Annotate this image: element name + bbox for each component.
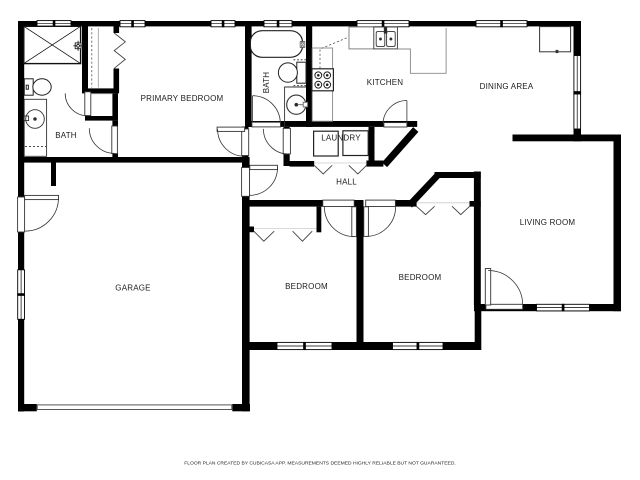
svg-text:HALL: HALL [336, 178, 357, 187]
svg-text:PRIMARY BEDROOM: PRIMARY BEDROOM [141, 94, 224, 103]
svg-text:BEDROOM: BEDROOM [285, 282, 328, 291]
svg-text:LAUNDRY: LAUNDRY [321, 134, 361, 143]
svg-text:DINING AREA: DINING AREA [480, 82, 534, 91]
svg-text:BATH: BATH [262, 72, 271, 94]
svg-text:LIVING ROOM: LIVING ROOM [520, 218, 576, 227]
svg-text:BEDROOM: BEDROOM [399, 273, 442, 282]
svg-text:FLOOR PLAN CREATED BY CUBICASA: FLOOR PLAN CREATED BY CUBICASA APP. MEAS… [184, 461, 456, 467]
svg-text:KITCHEN: KITCHEN [367, 78, 404, 87]
svg-text:BATH: BATH [55, 131, 77, 140]
svg-text:GARAGE: GARAGE [115, 284, 150, 293]
